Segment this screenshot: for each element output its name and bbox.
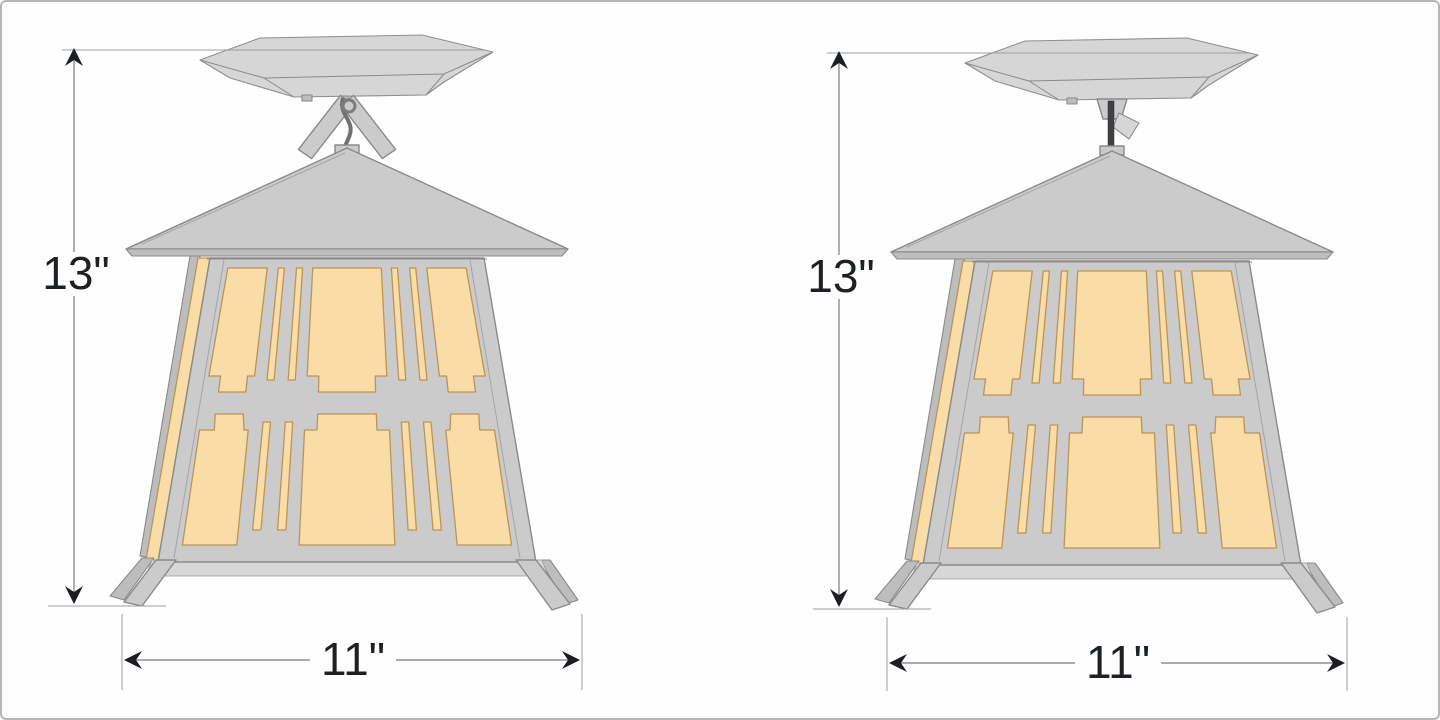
width-dimension: 11" [122, 614, 582, 690]
stem-rod [1108, 101, 1114, 153]
width-dimension: 11" [887, 617, 1347, 691]
canopy-graphic [200, 35, 493, 101]
figure-right: 13" 11" [807, 38, 1347, 691]
height-label: 13" [42, 247, 110, 299]
dimension-diagram: 13" 11" 13" [2, 2, 1440, 720]
canopy-graphic [965, 38, 1258, 104]
width-label: 11" [321, 633, 385, 685]
figure-left: 13" 11" [42, 35, 582, 690]
diagram-canvas: 13" 11" 13" [0, 0, 1440, 720]
stem-clip [1113, 113, 1139, 139]
lantern-graphic [110, 148, 578, 610]
height-label: 13" [807, 250, 875, 302]
width-label: 11" [1086, 636, 1150, 688]
lantern-graphic [875, 151, 1343, 613]
stem-mount [1097, 99, 1139, 155]
